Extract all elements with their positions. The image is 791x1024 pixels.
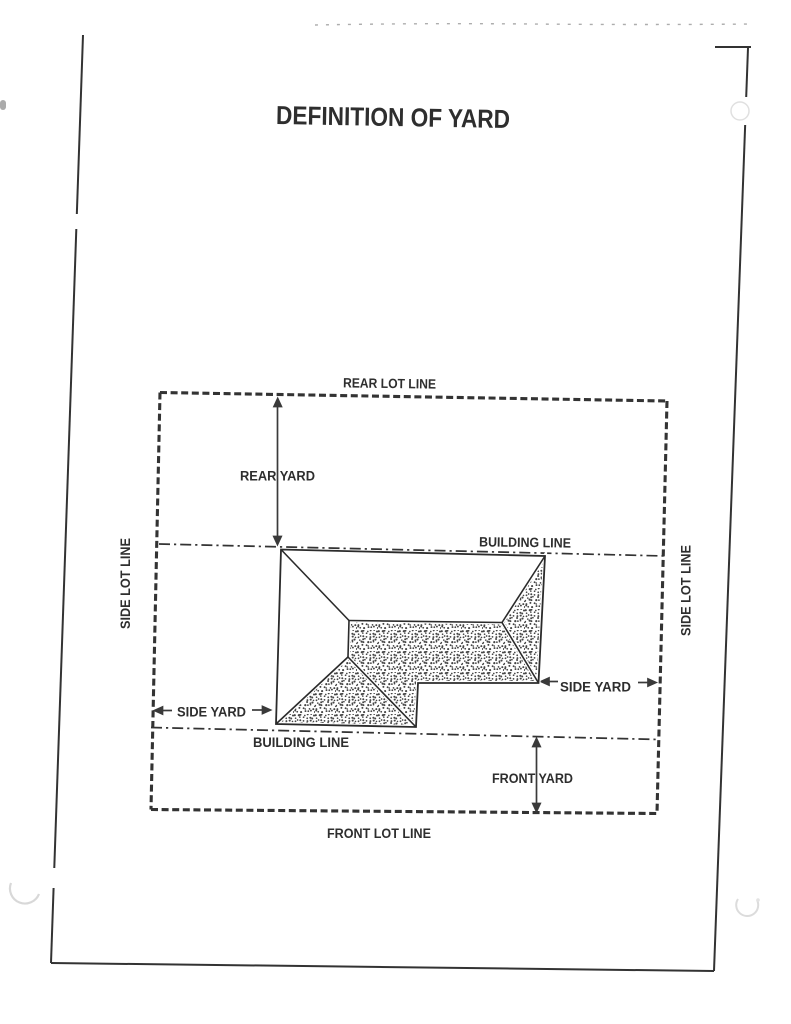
svg-text:REAR YARD: REAR YARD — [240, 469, 315, 484]
svg-text:BUILDING LINE: BUILDING LINE — [479, 534, 571, 550]
svg-text:FRONT YARD: FRONT YARD — [492, 771, 573, 786]
svg-text:REAR LOT LINE: REAR LOT LINE — [343, 375, 436, 391]
svg-text:SIDE YARD: SIDE YARD — [177, 705, 246, 720]
svg-text:SIDE LOT LINE: SIDE LOT LINE — [679, 545, 694, 636]
svg-text:SIDE YARD: SIDE YARD — [560, 680, 631, 695]
svg-text:DEFINITION OF YARD: DEFINITION OF YARD — [276, 100, 510, 134]
svg-text:FRONT LOT LINE: FRONT LOT LINE — [327, 826, 431, 841]
svg-text:SIDE LOT LINE: SIDE LOT LINE — [118, 538, 133, 629]
svg-text:BUILDING LINE: BUILDING LINE — [253, 735, 349, 750]
